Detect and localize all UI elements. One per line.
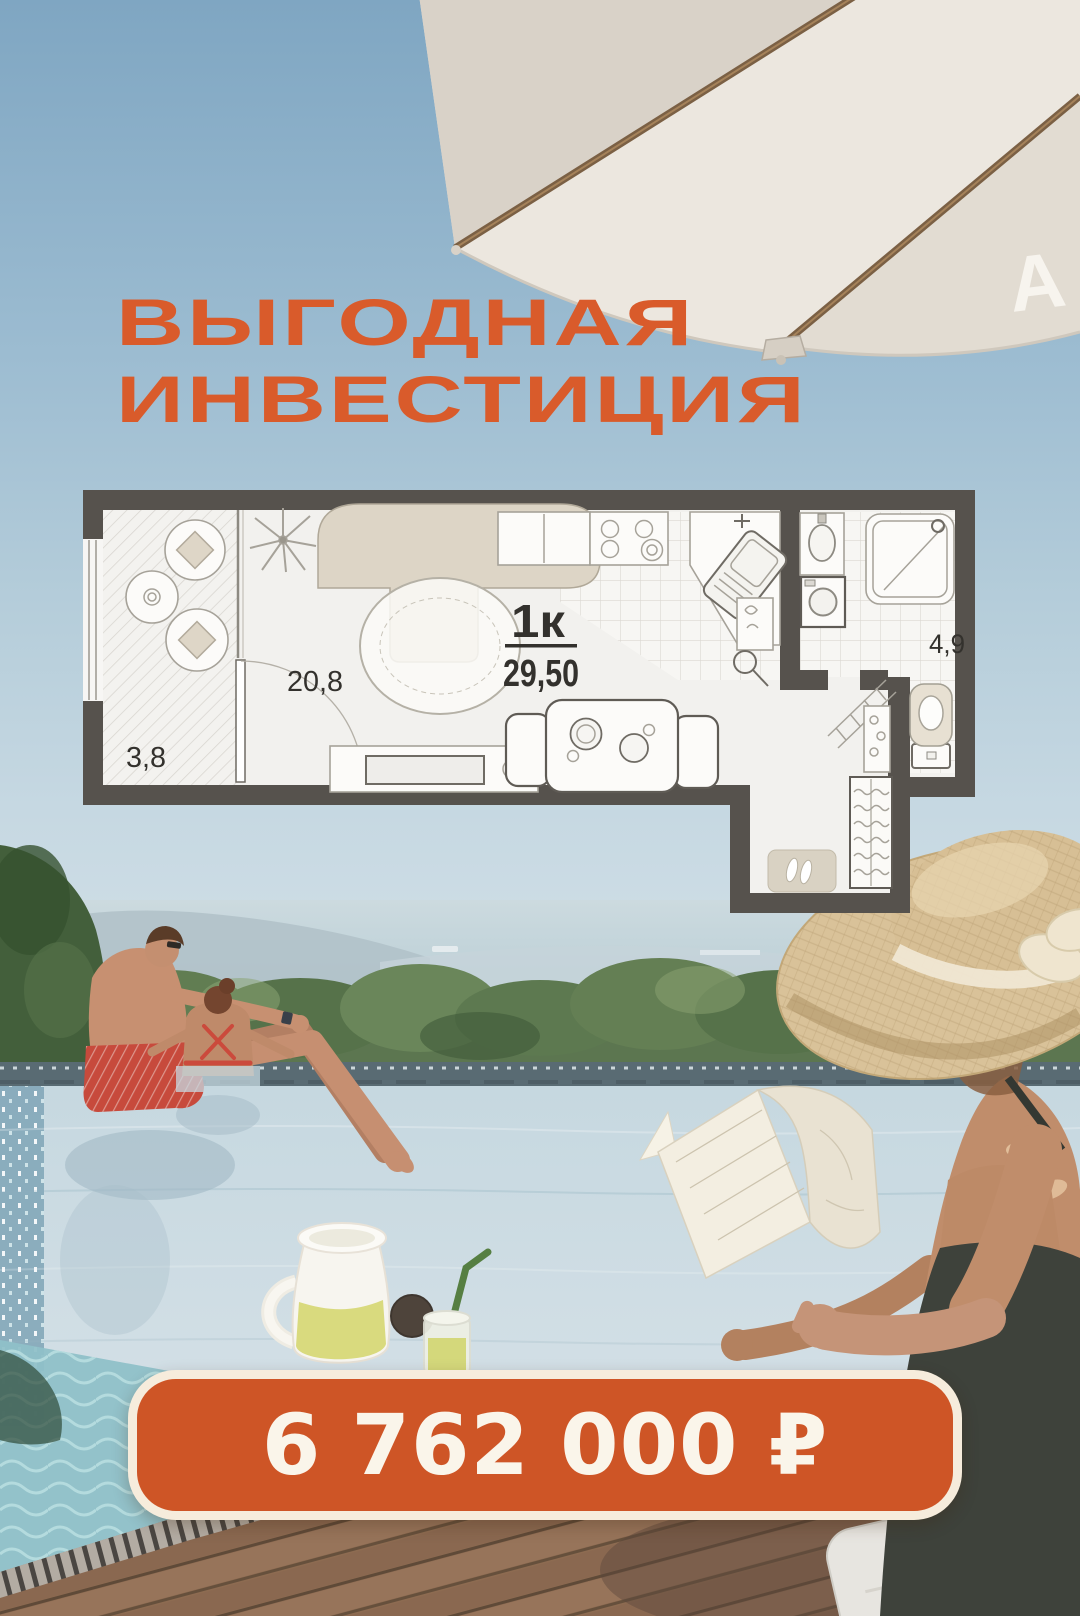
living-room-area: 20,8 [287, 666, 343, 698]
balcony-area: 3,8 [126, 742, 166, 774]
shower-tray [866, 514, 954, 604]
real-estate-ad-poster: А [0, 0, 1080, 1616]
prep-cart [737, 598, 773, 650]
tv [366, 756, 484, 784]
bottle-shelf [864, 706, 890, 772]
dining-chair [506, 714, 550, 786]
bathroom-area: 4,9 [929, 629, 965, 659]
plan-type-label: 1к [511, 595, 566, 647]
plan-total-area: 29,50 [503, 653, 579, 695]
dining-chair [674, 716, 718, 788]
dining-table [546, 700, 678, 792]
balcony-window [83, 531, 103, 709]
price-text: 6 762 000 ₽ [262, 1396, 828, 1494]
door-leaf [236, 660, 245, 782]
stove [590, 512, 668, 565]
kitchen-bath-wall [780, 510, 800, 690]
price-badge: 6 762 000 ₽ [128, 1370, 962, 1520]
